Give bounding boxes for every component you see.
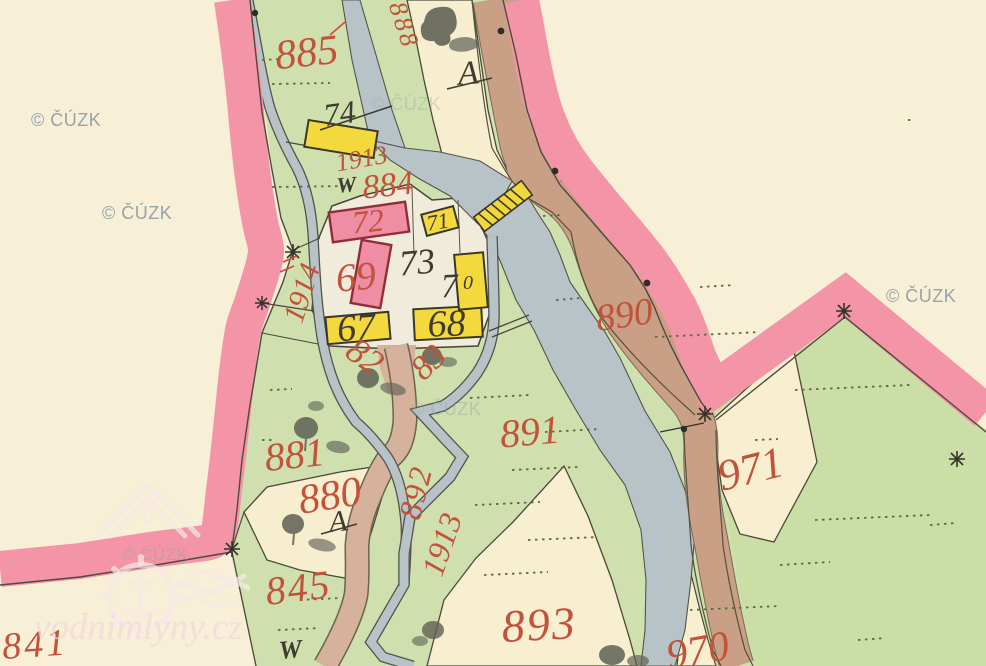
svg-text:0: 0 [463, 272, 473, 294]
svg-text:72: 72 [350, 201, 386, 240]
svg-text:W: W [277, 634, 304, 665]
svg-text:69: 69 [334, 252, 378, 300]
svg-text:67: 67 [336, 306, 379, 351]
svg-text:© ČÚZK: © ČÚZK [31, 109, 101, 130]
svg-text:885: 885 [273, 27, 340, 79]
svg-text:893: 893 [500, 597, 578, 652]
svg-text:884: 884 [361, 164, 416, 206]
svg-text:A: A [455, 54, 481, 93]
svg-text:© ČÚZK: © ČÚZK [102, 202, 172, 223]
svg-text:890: 890 [593, 290, 655, 340]
svg-text:71: 71 [425, 207, 451, 235]
svg-text:© ČÚZK: © ČÚZK [886, 285, 956, 306]
svg-text:vodnimlyny.cz: vodnimlyny.cz [34, 607, 243, 648]
svg-text:W: W [336, 171, 359, 198]
svg-text:© ČÚZK: © ČÚZK [122, 545, 189, 564]
svg-text:891: 891 [498, 407, 562, 457]
svg-text:881: 881 [262, 429, 326, 480]
svg-text:68: 68 [427, 302, 466, 345]
svg-text:845: 845 [263, 561, 334, 614]
svg-text:73: 73 [397, 241, 436, 284]
svg-text:© ČÚZK: © ČÚZK [371, 93, 441, 114]
svg-text:© ČÚZK: © ČÚZK [411, 398, 481, 419]
